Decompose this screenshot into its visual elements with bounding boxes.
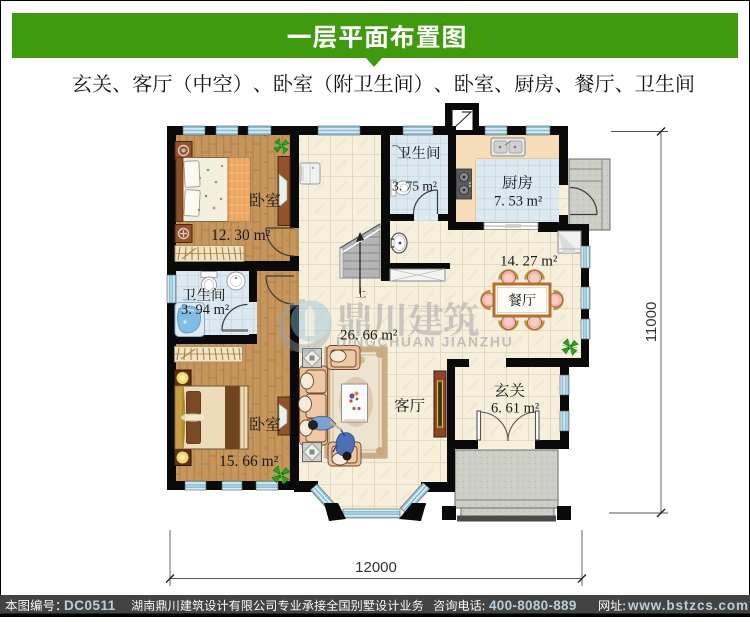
- svg-text:DC0511: DC0511: [64, 598, 116, 613]
- svg-text:26. 66 m²: 26. 66 m²: [340, 328, 398, 344]
- svg-text:12. 30 m²: 12. 30 m²: [211, 227, 271, 244]
- svg-text:www.bstzcs.com: www.bstzcs.com: [627, 598, 749, 613]
- svg-text:400-8080-889: 400-8080-889: [489, 598, 577, 613]
- svg-text:12000: 12000: [355, 559, 397, 576]
- svg-text:7. 53 m²: 7. 53 m²: [494, 194, 543, 210]
- svg-text:3. 94 m²: 3. 94 m²: [181, 302, 230, 318]
- svg-text:14. 27 m²: 14. 27 m²: [500, 254, 558, 270]
- svg-text:15. 66 m²: 15. 66 m²: [219, 453, 279, 470]
- svg-text:3. 75 m²: 3. 75 m²: [392, 179, 437, 194]
- svg-text:6. 61 m²: 6. 61 m²: [491, 401, 540, 417]
- svg-text:11000: 11000: [643, 302, 660, 343]
